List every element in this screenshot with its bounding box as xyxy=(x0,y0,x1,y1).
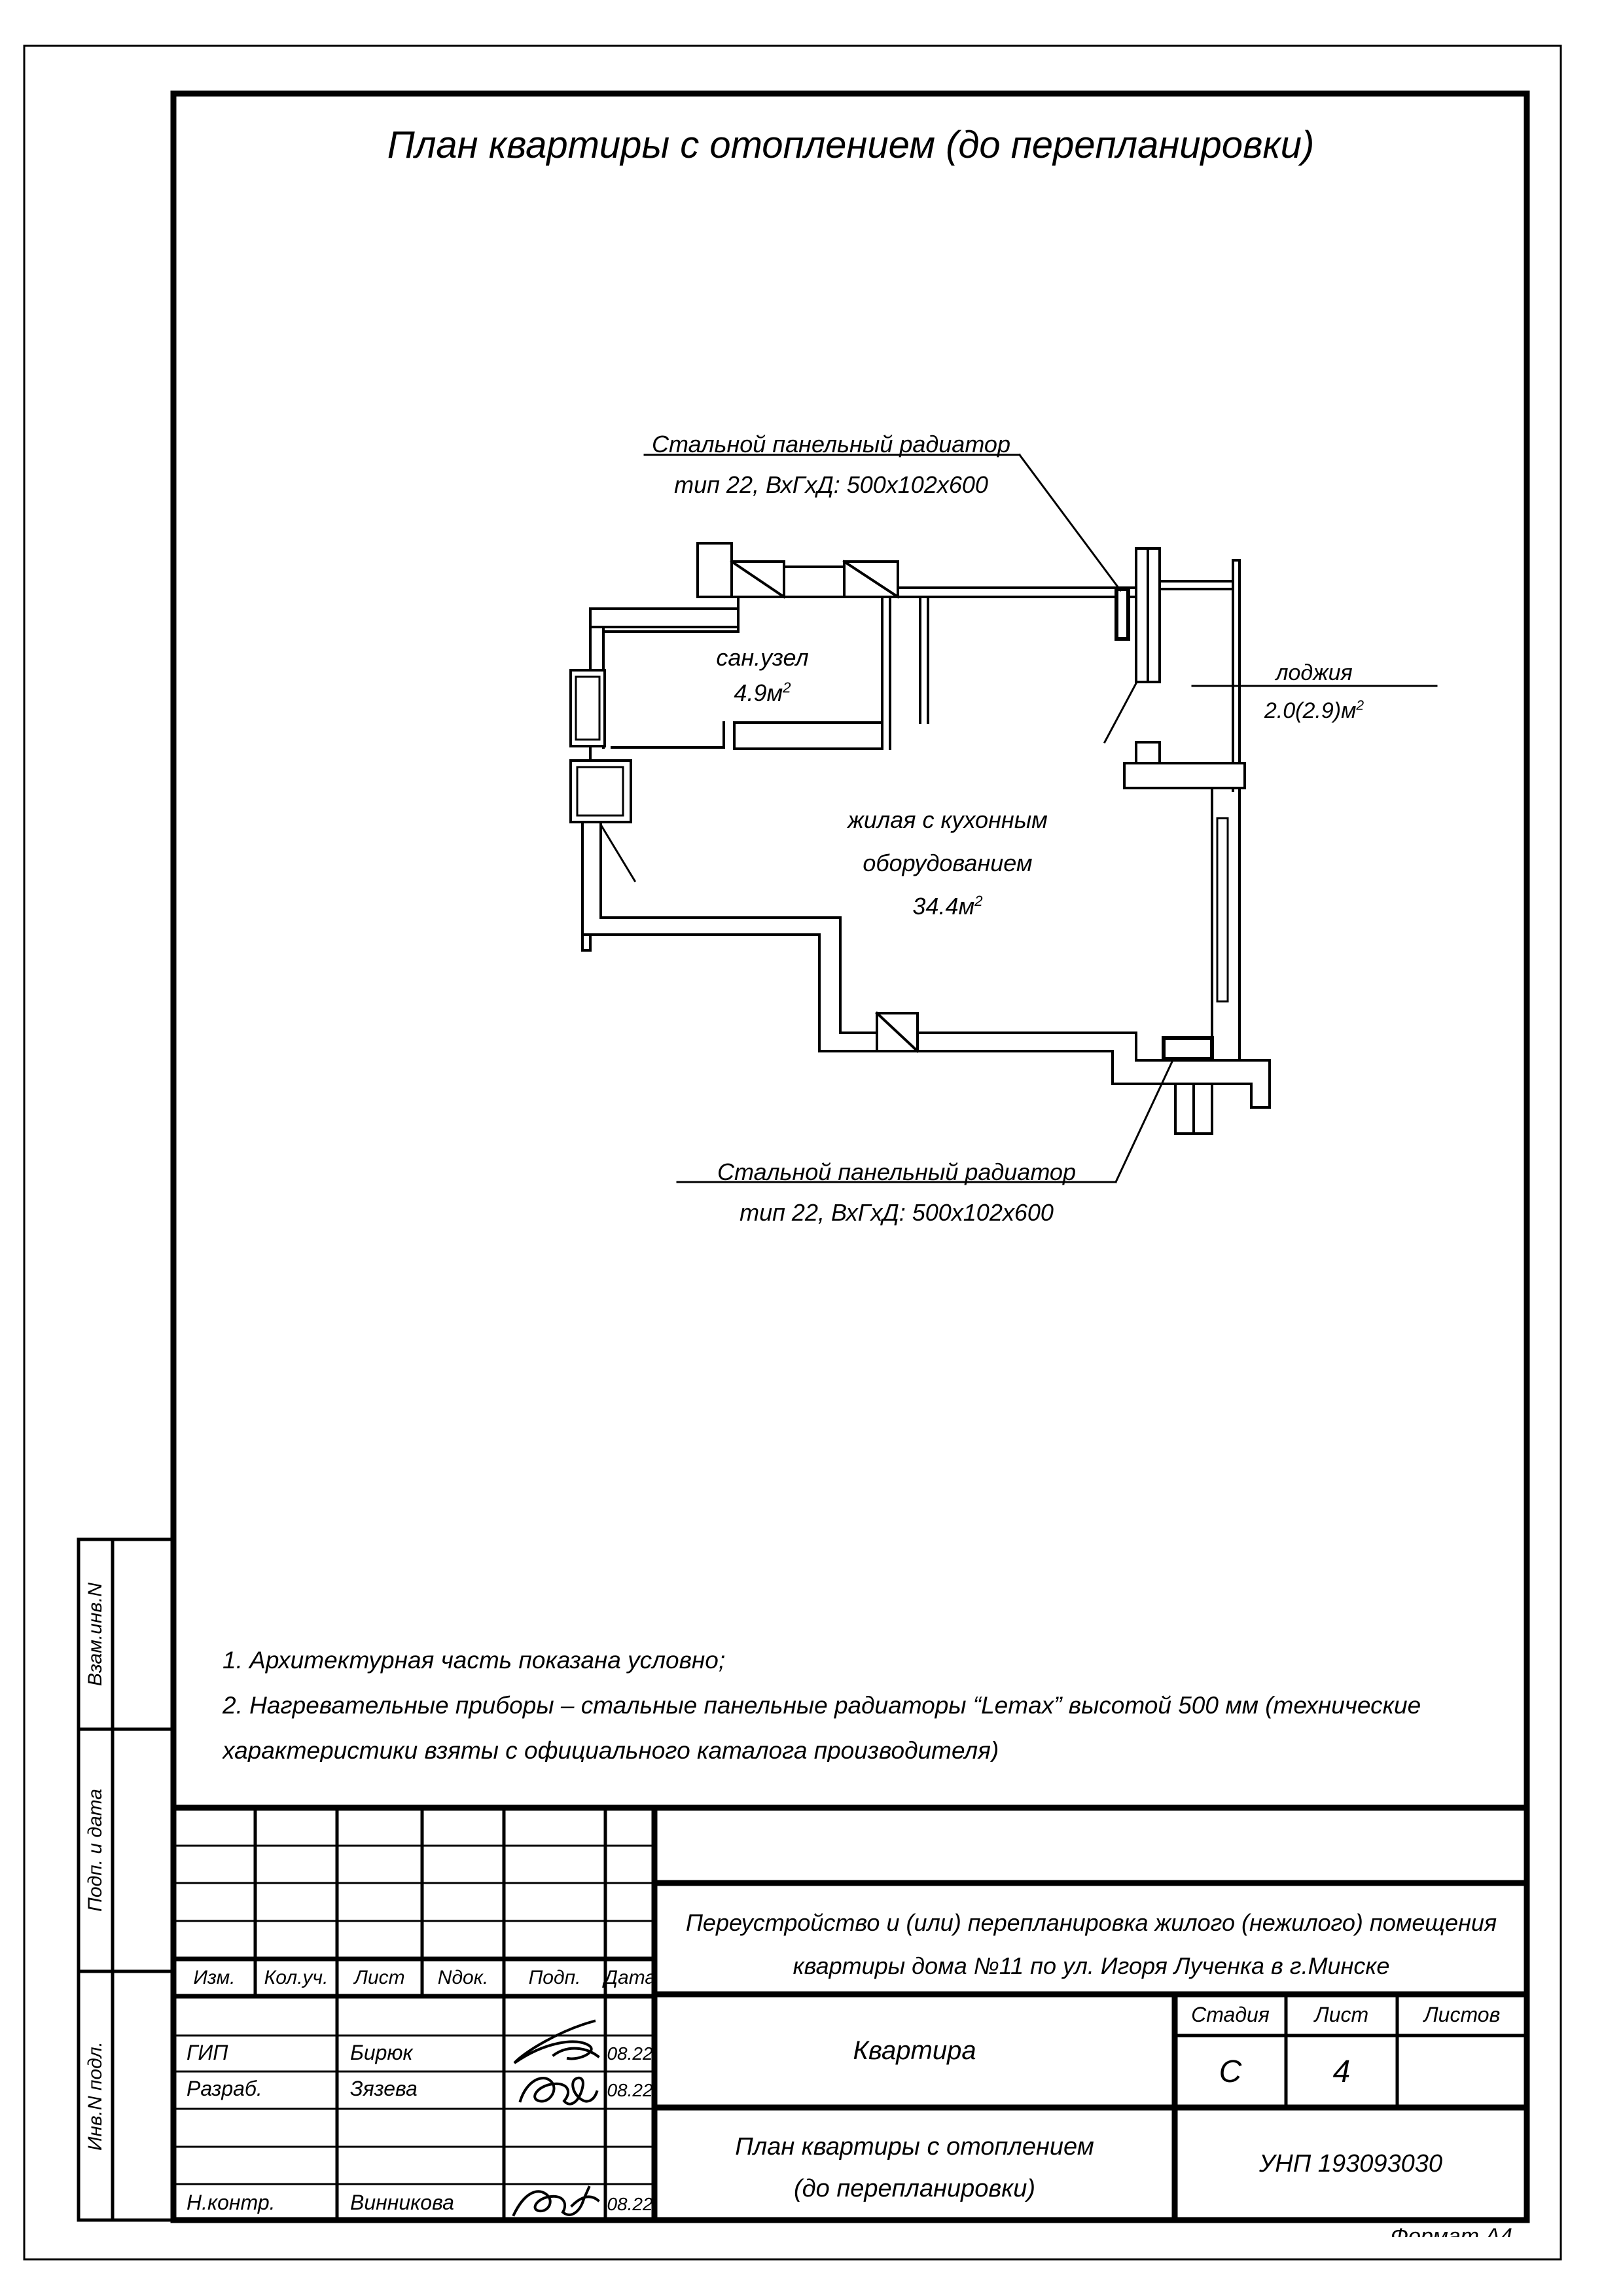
loggia-area-value: 2.0(2.9)м xyxy=(1264,698,1356,723)
radiator-label-bottom-line2: тип 22, ВхГхД: 500х102х600 xyxy=(654,1193,1139,1233)
col-izm: Изм. xyxy=(173,1959,255,1996)
project-name-line1: Переустройство и (или) перепланировка жи… xyxy=(661,1901,1522,1945)
radiator-label-bottom-line1: Стальной панельный радиатор xyxy=(654,1152,1139,1193)
radiator-label-top-line1: Стальной панельный радиатор xyxy=(589,424,1073,465)
col-ndok: Nдок. xyxy=(422,1959,504,1996)
col-izm-label: Изм. xyxy=(194,1967,236,1989)
drawing-sheet: План квартиры с отоплением (до переплани… xyxy=(0,0,1623,2296)
vent-shaft-2 xyxy=(844,562,898,597)
living-line2: оборудованием xyxy=(751,842,1144,885)
sheet-header-label: Лист xyxy=(1315,2003,1368,2027)
note-1: 1. Архитектурная часть показана условно; xyxy=(223,1647,725,1674)
doc-name: План квартиры с отоплением (до переплани… xyxy=(654,2126,1175,2210)
wall-parapet xyxy=(590,609,738,627)
wall xyxy=(582,935,819,1051)
window-left-lower xyxy=(571,761,631,822)
duct-bottom-right xyxy=(1175,1084,1212,1134)
row-nkontr-name: Винникова xyxy=(350,2191,454,2215)
radiator-label-top-line2: тип 22, ВхГхД: 500х102х600 xyxy=(589,465,1073,505)
note-2: 2. Нагревательные приборы – стальные пан… xyxy=(223,1692,1421,1719)
row-razrab-date: 08.22 xyxy=(605,2080,654,2101)
window-loggia xyxy=(1217,818,1228,1001)
loggia-sill xyxy=(1124,763,1245,788)
radiator-label-top: Стальной панельный радиатор тип 22, ВхГх… xyxy=(589,424,1073,505)
sidebar-item-inv-podl: Инв.N подл. xyxy=(79,1971,113,2220)
note-3: характеристики взяты с официального ката… xyxy=(223,1737,999,1762)
bathroom-area-sup: 2 xyxy=(783,679,791,696)
row-gip-role: ГИП xyxy=(187,2041,228,2065)
col-data-label: Дата xyxy=(604,1967,656,1989)
living-line1: жилая с кухонным xyxy=(751,798,1144,842)
living-area-sup: 2 xyxy=(974,893,982,909)
row-gip-name: Бирюк xyxy=(350,2041,413,2065)
room-label-bathroom: сан.узел 4.9м2 xyxy=(632,640,893,711)
vent-shaft-1 xyxy=(732,562,784,597)
radiator-bottom xyxy=(1164,1038,1212,1059)
doc-name-line2: (до перепланировки) xyxy=(654,2168,1175,2210)
doc-name-line1: План квартиры с отоплением xyxy=(654,2126,1175,2168)
stage-value: С xyxy=(1175,2036,1286,2108)
col-list-label: Лист xyxy=(354,1967,404,1989)
row-razrab-role: Разраб. xyxy=(187,2077,262,2101)
sheets-header-label: Листов xyxy=(1424,2003,1501,2027)
object-name-label: Квартира xyxy=(853,2036,976,2066)
sheets-value xyxy=(1397,2036,1527,2108)
loggia-area: 2.0(2.9)м2 xyxy=(1183,694,1445,727)
row-razrab-name: Зязева xyxy=(350,2077,418,2101)
sidebar-item-vzam-inv-label: Взам.инв.N xyxy=(84,1583,107,1686)
row-nkontr-date: 08.22 xyxy=(605,2194,654,2215)
unp-number: УНП 193093030 xyxy=(1175,2108,1527,2220)
col-podp-label: Подп. xyxy=(529,1967,581,1989)
col-podp: Подп. xyxy=(504,1959,605,1996)
format-label: Формат А4 xyxy=(1391,2224,1528,2237)
col-koluch-label: Кол.уч. xyxy=(264,1967,329,1989)
bathroom-area-value: 4.9м xyxy=(734,679,783,706)
wall-block xyxy=(1136,742,1160,763)
project-name-line2: квартиры дома №11 по ул. Игоря Лученка в… xyxy=(661,1945,1522,1988)
col-data: Дата xyxy=(605,1959,654,1996)
col-koluch: Кол.уч. xyxy=(255,1959,337,1996)
signature-gip xyxy=(514,2021,598,2063)
window-left-upper xyxy=(571,670,605,746)
sidebar-item-vzam-inv: Взам.инв.N xyxy=(79,1539,113,1729)
room-label-loggia: лоджия 2.0(2.9)м2 xyxy=(1183,656,1445,727)
sheet-header: Лист xyxy=(1286,1994,1397,2036)
sidebar-item-podp-data-label: Подп. и дата xyxy=(84,1789,107,1912)
radiator-label-bottom: Стальной панельный радиатор тип 22, ВхГх… xyxy=(654,1152,1139,1233)
stage-header: Стадия xyxy=(1175,1994,1286,2036)
signature-nkontr xyxy=(514,2187,598,2215)
bathroom-name: сан.узел xyxy=(632,640,893,675)
project-name: Переустройство и (или) перепланировка жи… xyxy=(661,1901,1522,1988)
signature-razrab xyxy=(520,2078,597,2104)
col-list: Лист xyxy=(337,1959,422,1996)
loggia-name: лоджия xyxy=(1183,656,1445,689)
stage-header-label: Стадия xyxy=(1191,2003,1270,2027)
vent-shaft-3 xyxy=(877,1013,918,1051)
door-swing-loggia xyxy=(1105,683,1136,742)
col-ndok-label: Nдок. xyxy=(438,1967,488,1989)
room-label-living: жилая с кухонным оборудованием 34.4м2 xyxy=(751,798,1144,928)
sheet-title: План квартиры с отоплением (до переплани… xyxy=(262,123,1440,167)
signatures xyxy=(514,2021,598,2215)
living-area-value: 34.4м xyxy=(912,893,974,920)
unp-number-text: УНП 193093030 xyxy=(1259,2150,1442,2178)
door-swing-left xyxy=(601,825,635,881)
object-name: Квартира xyxy=(654,1994,1175,2108)
row-nkontr-role: Н.контр. xyxy=(187,2191,276,2215)
sheet-value: 4 xyxy=(1286,2036,1397,2108)
radiator-top xyxy=(1116,589,1128,639)
stage-value-text: С xyxy=(1219,2054,1242,2090)
sheets-header: Листов xyxy=(1397,1994,1527,2036)
bathroom-area: 4.9м2 xyxy=(632,675,893,711)
sheet-value-text: 4 xyxy=(1333,2054,1351,2090)
sidebar-item-inv-podl-label: Инв.N подл. xyxy=(84,2041,107,2151)
loggia-area-sup: 2 xyxy=(1356,698,1364,713)
living-area: 34.4м2 xyxy=(751,885,1144,928)
sidebar-item-podp-data: Подп. и дата xyxy=(79,1729,113,1971)
wall-band xyxy=(734,723,882,749)
pillar xyxy=(698,543,732,597)
row-gip-date: 08.22 xyxy=(605,2043,654,2064)
